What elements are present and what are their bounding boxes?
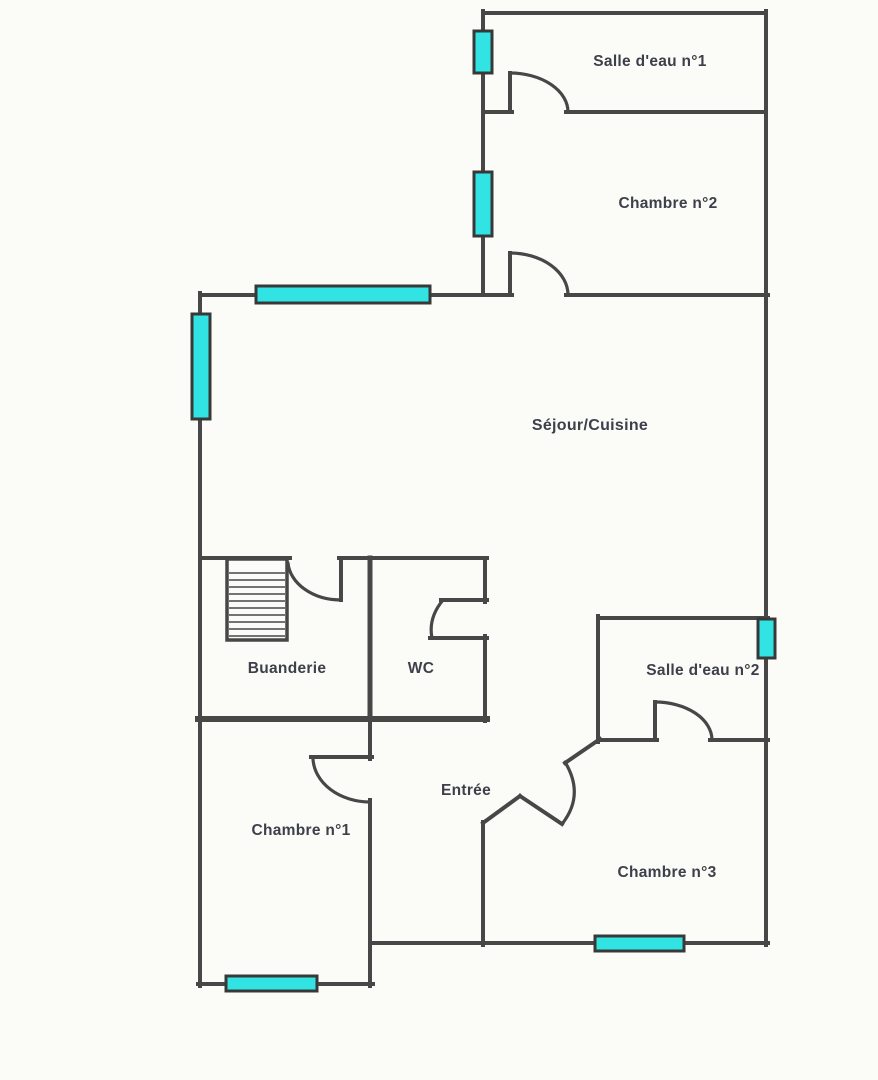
room-label-chambre-3: Chambre n°3	[617, 864, 716, 881]
room-label-chambre-1: Chambre n°1	[251, 822, 350, 839]
plan-background	[0, 0, 878, 1080]
room-label-buanderie: Buanderie	[248, 660, 327, 677]
room-label-wc: WC	[408, 660, 434, 677]
floor-plan-svg: Salle d'eau n°1Chambre n°2Séjour/Cuisine…	[0, 0, 878, 1080]
room-label-chambre-2: Chambre n°2	[618, 195, 717, 212]
window-marker	[226, 976, 317, 991]
room-label-sejour-cuisine: Séjour/Cuisine	[532, 417, 648, 434]
room-label-salle-deau-2: Salle d'eau n°2	[646, 662, 759, 679]
window-marker	[474, 172, 492, 236]
window-marker	[192, 314, 210, 419]
room-label-salle-deau-1: Salle d'eau n°1	[593, 53, 707, 70]
window-marker	[758, 619, 775, 658]
window-marker	[595, 936, 684, 951]
window-marker	[474, 31, 492, 73]
window-marker	[256, 286, 430, 303]
floor-plan: Salle d'eau n°1Chambre n°2Séjour/Cuisine…	[0, 0, 878, 1080]
room-label-entree: Entrée	[441, 782, 491, 799]
